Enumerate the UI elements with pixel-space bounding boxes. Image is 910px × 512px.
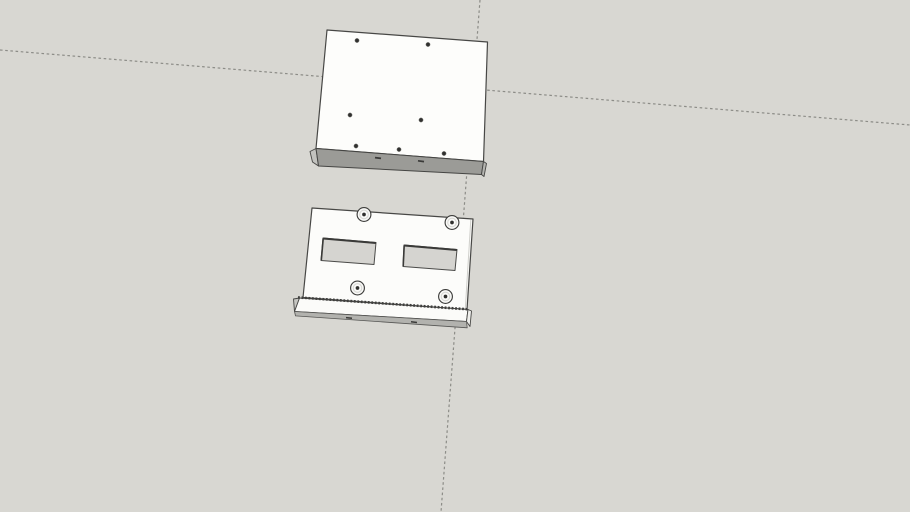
screw-hole-2	[426, 42, 430, 46]
standoff-3-hole	[356, 286, 360, 290]
model-top-plate[interactable]	[310, 30, 488, 177]
screw-hole-4	[419, 118, 423, 122]
standoff-1-hole	[362, 213, 366, 217]
screw-hole-7	[442, 151, 446, 155]
model-bottom-bracket[interactable]	[294, 208, 474, 328]
edge-hole-mark-1	[375, 158, 381, 159]
rail-bottom-mark-2	[411, 322, 417, 323]
standoff-2-hole	[450, 221, 454, 225]
screw-hole-1	[355, 38, 359, 42]
modeling-viewport[interactable]	[0, 0, 910, 512]
standoff-4-hole	[444, 295, 448, 299]
plate-top-face	[316, 30, 488, 162]
edge-hole-mark-2	[418, 161, 424, 162]
scene-canvas[interactable]	[0, 0, 910, 512]
rail-bottom-mark-1	[346, 318, 352, 319]
cutout-right-shadow-side	[403, 246, 404, 267]
screw-hole-6	[397, 147, 401, 151]
screw-hole-5	[354, 144, 358, 148]
screw-hole-3	[348, 113, 352, 117]
